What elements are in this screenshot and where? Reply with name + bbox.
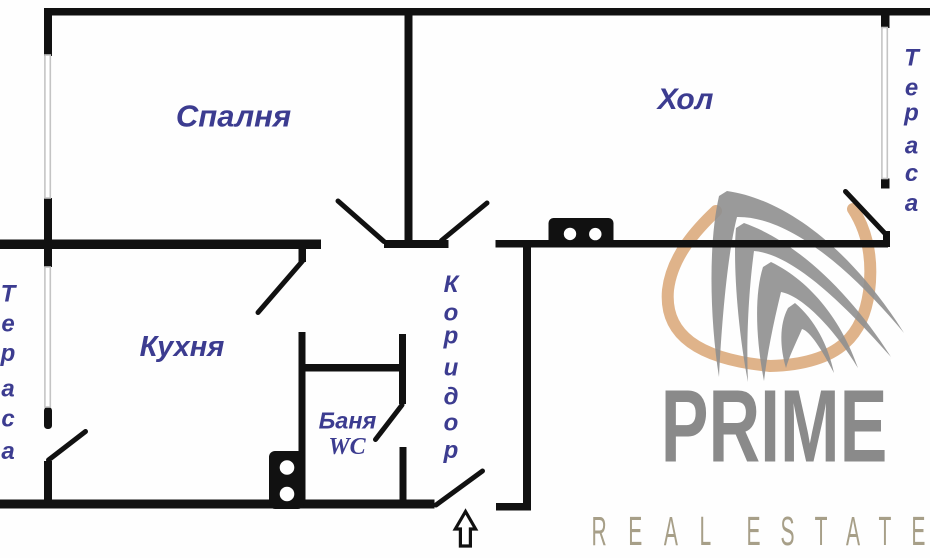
svg-text:р: р (903, 100, 919, 127)
svg-text:WC: WC (328, 434, 366, 460)
svg-text:Кухня: Кухня (140, 331, 225, 363)
svg-text:Хол: Хол (656, 83, 714, 116)
svg-text:е: е (905, 75, 918, 102)
svg-text:и: и (444, 355, 459, 382)
svg-text:Спалня: Спалня (176, 98, 291, 133)
svg-text:Т: Т (1, 281, 18, 308)
svg-text:а: а (1, 438, 14, 465)
svg-text:о: о (444, 410, 459, 437)
svg-text:Баня: Баня (319, 407, 377, 433)
svg-text:д: д (444, 384, 459, 411)
svg-text:е: е (1, 311, 14, 338)
svg-text:р: р (443, 437, 459, 464)
svg-text:Т: Т (904, 44, 921, 71)
svg-text:р: р (0, 340, 15, 367)
svg-text:К: К (444, 271, 461, 298)
svg-text:а: а (905, 190, 918, 217)
svg-text:с: с (905, 160, 918, 187)
svg-text:PRIME: PRIME (661, 368, 888, 483)
svg-text:с: с (1, 406, 14, 433)
svg-text:а: а (905, 132, 918, 159)
svg-text:р: р (443, 323, 459, 350)
svg-text:а: а (1, 376, 14, 403)
svg-text:ESTATE: ESTATE (747, 508, 930, 553)
svg-text:REAL: REAL (592, 508, 733, 553)
